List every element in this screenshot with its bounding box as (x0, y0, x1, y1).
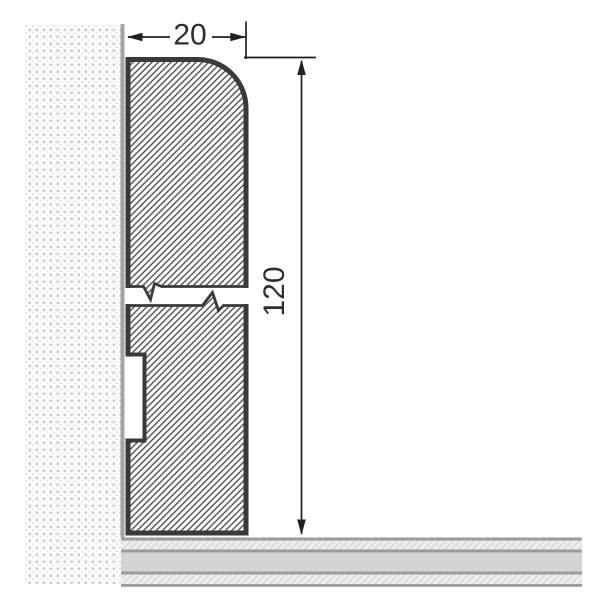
skirting-profile-lower (126, 293, 247, 534)
floor-screed-layer-bottom (121, 575, 582, 585)
technical-drawing: 20 120 (0, 0, 604, 604)
arrowhead-up-icon (297, 60, 306, 76)
arrowhead-left-icon (127, 33, 143, 42)
dimension-width-value: 20 (173, 19, 206, 52)
dimension-height: 120 (244, 58, 316, 536)
cable-groove-outline (126, 355, 145, 441)
dimension-height-value: 120 (258, 266, 291, 316)
drawing-canvas: 20 120 (0, 0, 604, 604)
floor-bottom-border (121, 584, 582, 587)
profile-upper-hatch-fill (128, 59, 246, 299)
wall (25, 24, 125, 584)
arrowhead-down-icon (297, 520, 306, 536)
skirting-profile-upper (128, 59, 246, 299)
floor-separator-line-2 (121, 572, 582, 575)
wall-edge-line (121, 24, 125, 538)
wall-plaster-texture (25, 24, 121, 584)
floor-screed-layer-top (121, 541, 582, 550)
floor-top-border (121, 538, 582, 541)
floor-core-layer (121, 553, 582, 572)
floor-separator-line-1 (121, 550, 582, 553)
floor (121, 538, 582, 587)
arrowhead-right-icon (230, 33, 246, 42)
dimension-width: 20 (127, 19, 246, 60)
